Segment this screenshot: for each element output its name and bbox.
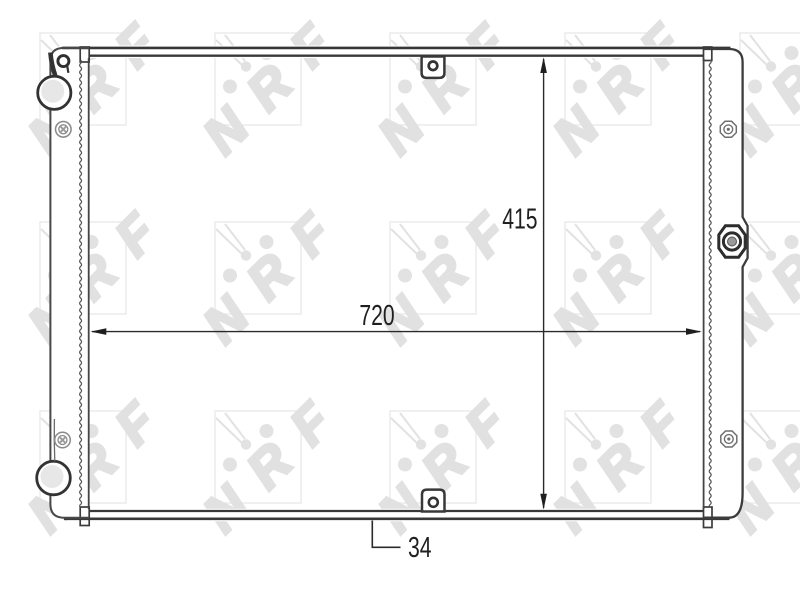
svg-text:720: 720: [359, 300, 394, 332]
svg-text:415: 415: [502, 203, 537, 235]
svg-text:34: 34: [408, 532, 432, 564]
